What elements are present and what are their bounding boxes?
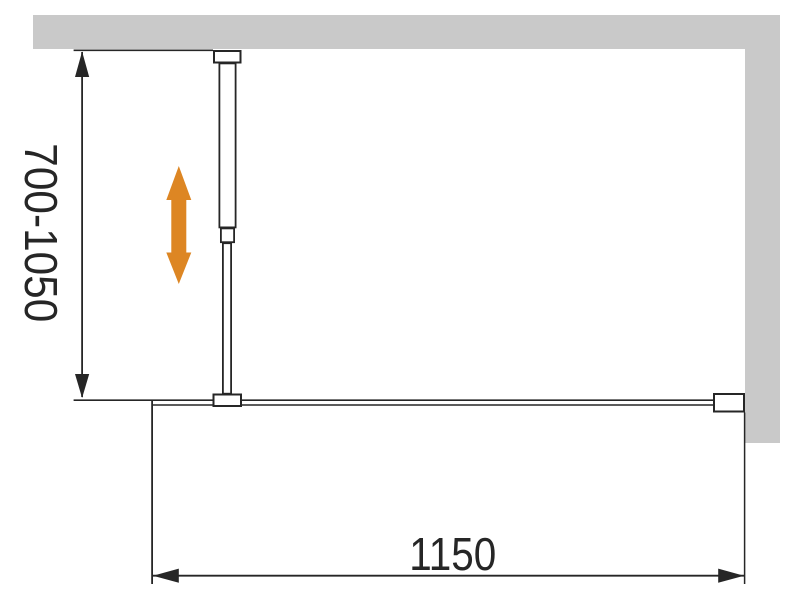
svg-text:700-1050: 700-1050 (15, 143, 67, 322)
svg-text:1150: 1150 (409, 528, 496, 580)
